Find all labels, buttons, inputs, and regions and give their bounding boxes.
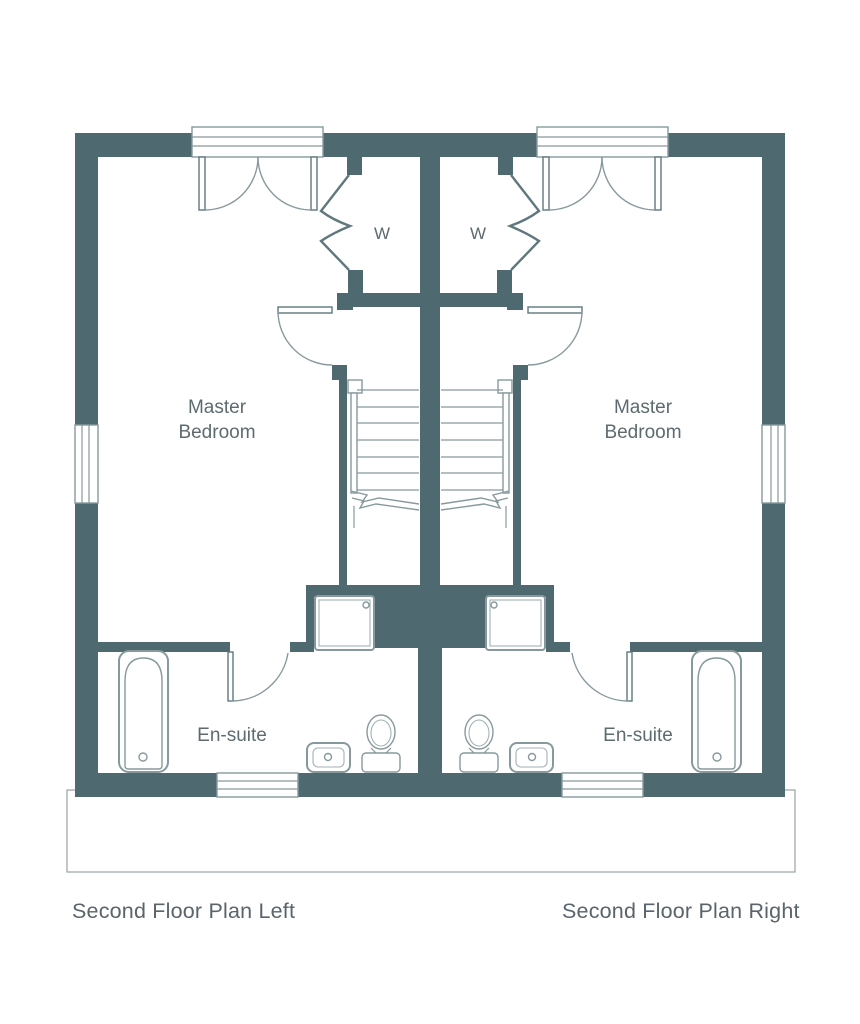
master-bedroom-label-left-line2: Bedroom bbox=[178, 422, 255, 443]
stair-rail bbox=[351, 393, 357, 493]
lower-floor-outline-rect bbox=[67, 790, 795, 872]
caption-right: Second Floor Plan Right bbox=[562, 899, 800, 923]
window-bottom-left bbox=[217, 773, 298, 797]
window-top-left bbox=[192, 127, 323, 210]
lower-floor-outline bbox=[67, 790, 795, 872]
ensuite-door-right bbox=[572, 652, 632, 701]
stair-rail bbox=[503, 393, 509, 493]
master-bedroom-label-right-line2: Bedroom bbox=[604, 422, 681, 443]
stair-break-line bbox=[441, 491, 509, 504]
window-bottom-right bbox=[562, 773, 643, 797]
stair-break-line bbox=[352, 498, 419, 510]
toilet-right bbox=[460, 715, 498, 772]
shower-right bbox=[486, 596, 545, 650]
wardrobe-label-right: W bbox=[470, 224, 486, 243]
caption-left: Second Floor Plan Left bbox=[72, 899, 295, 923]
sink-right bbox=[510, 743, 553, 772]
internal-walls-right bbox=[440, 157, 762, 652]
shower-left bbox=[315, 596, 374, 650]
toilet-left bbox=[362, 715, 400, 772]
bath-left bbox=[119, 651, 168, 772]
bedroom-door-left bbox=[278, 307, 332, 365]
wardrobe-label-left: W bbox=[374, 224, 390, 243]
master-bedroom-label-right-line1: Master bbox=[614, 397, 673, 418]
window-right-wall bbox=[762, 425, 785, 503]
staircase-left bbox=[348, 380, 419, 528]
internal-walls-left bbox=[98, 157, 420, 652]
newel-post bbox=[348, 380, 362, 393]
master-bedroom-label-left-line1: Master bbox=[188, 397, 247, 418]
ensuite-label-right: En-suite bbox=[603, 725, 673, 746]
sink-left bbox=[307, 743, 350, 772]
floor-plan-page: W W Master Bedroom Master Bedroom En-sui… bbox=[0, 0, 860, 1024]
stair-break-line bbox=[351, 491, 419, 504]
bath-right bbox=[692, 651, 741, 772]
floor-plan-drawing: W W Master Bedroom Master Bedroom En-sui… bbox=[0, 0, 860, 1024]
window-left-wall bbox=[75, 425, 98, 503]
wardrobe-door-left bbox=[321, 175, 350, 270]
wardrobe-door-right bbox=[510, 175, 539, 270]
staircase-right bbox=[441, 380, 512, 528]
newel-post bbox=[498, 380, 512, 393]
ensuite-label-left: En-suite bbox=[197, 725, 267, 746]
ensuite-door-left bbox=[228, 652, 288, 701]
walls bbox=[75, 133, 785, 797]
window-top-right bbox=[537, 127, 668, 210]
stair-break-line bbox=[441, 498, 508, 510]
party-wall bbox=[374, 157, 486, 775]
bedroom-door-right bbox=[528, 307, 582, 365]
